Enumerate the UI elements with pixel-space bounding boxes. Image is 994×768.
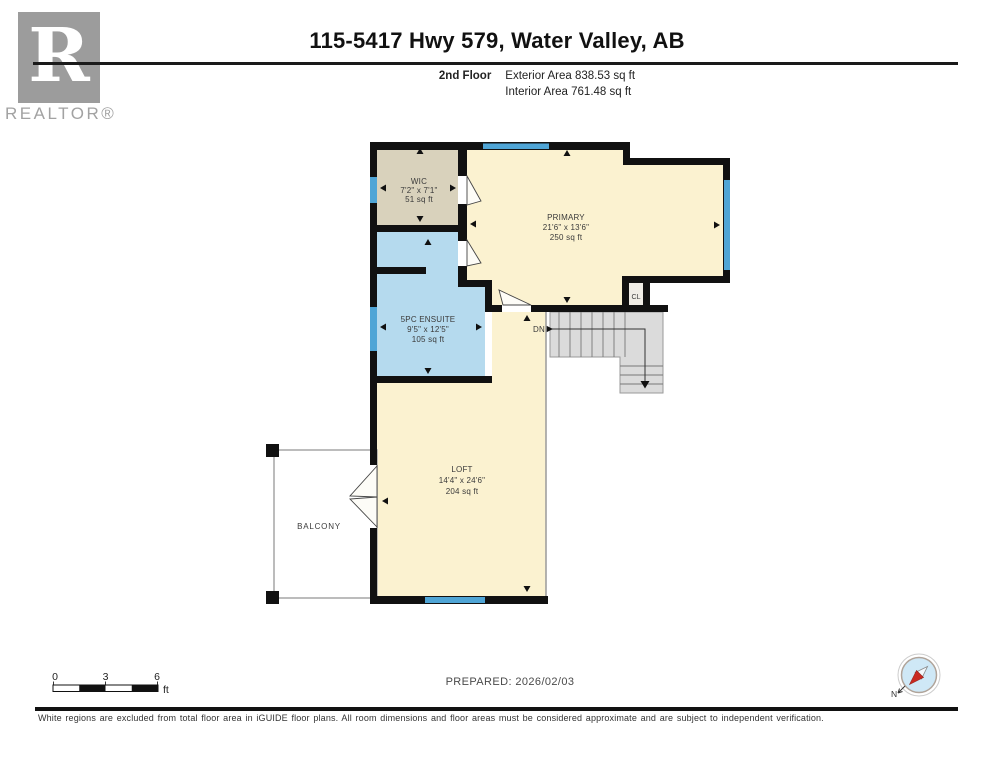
disclaimer-text: White regions are excluded from total fl… (38, 713, 824, 723)
ensuite-dims: 9'5" x 12'5" (407, 325, 449, 334)
compass-north-label: N (891, 689, 897, 699)
stairs (546, 312, 663, 393)
room-label-balcony: BALCONY (297, 522, 341, 531)
room-label-closet: CL (632, 294, 641, 301)
wic-name: WIC (411, 177, 427, 186)
wic-area: 51 sq ft (405, 195, 433, 204)
stairs-body (550, 312, 663, 393)
primary-area: 250 sq ft (550, 233, 583, 242)
loft-dims: 14'4" x 24'6" (439, 476, 485, 485)
floor-plan-drawing: WIC 7'2" x 7'1" 51 sq ft PRIMARY 21'6" x… (0, 0, 994, 768)
wic-dims: 7'2" x 7'1" (400, 186, 437, 195)
primary-dims: 21'6" x 13'6" (543, 223, 589, 232)
floor-plan-page: R REALTOR® 115-5417 Hwy 579, Water Valle… (0, 0, 994, 768)
primary-name: PRIMARY (547, 213, 585, 222)
loft-name: LOFT (451, 465, 472, 474)
ensuite-name: 5PC ENSUITE (401, 315, 456, 324)
footer-divider-line (35, 707, 958, 711)
stairs-down-label: DN (533, 325, 545, 334)
prepared-date: PREPARED: 2026/02/03 (13, 676, 994, 688)
ensuite-area: 105 sq ft (412, 335, 445, 344)
loft-area: 204 sq ft (446, 487, 479, 496)
